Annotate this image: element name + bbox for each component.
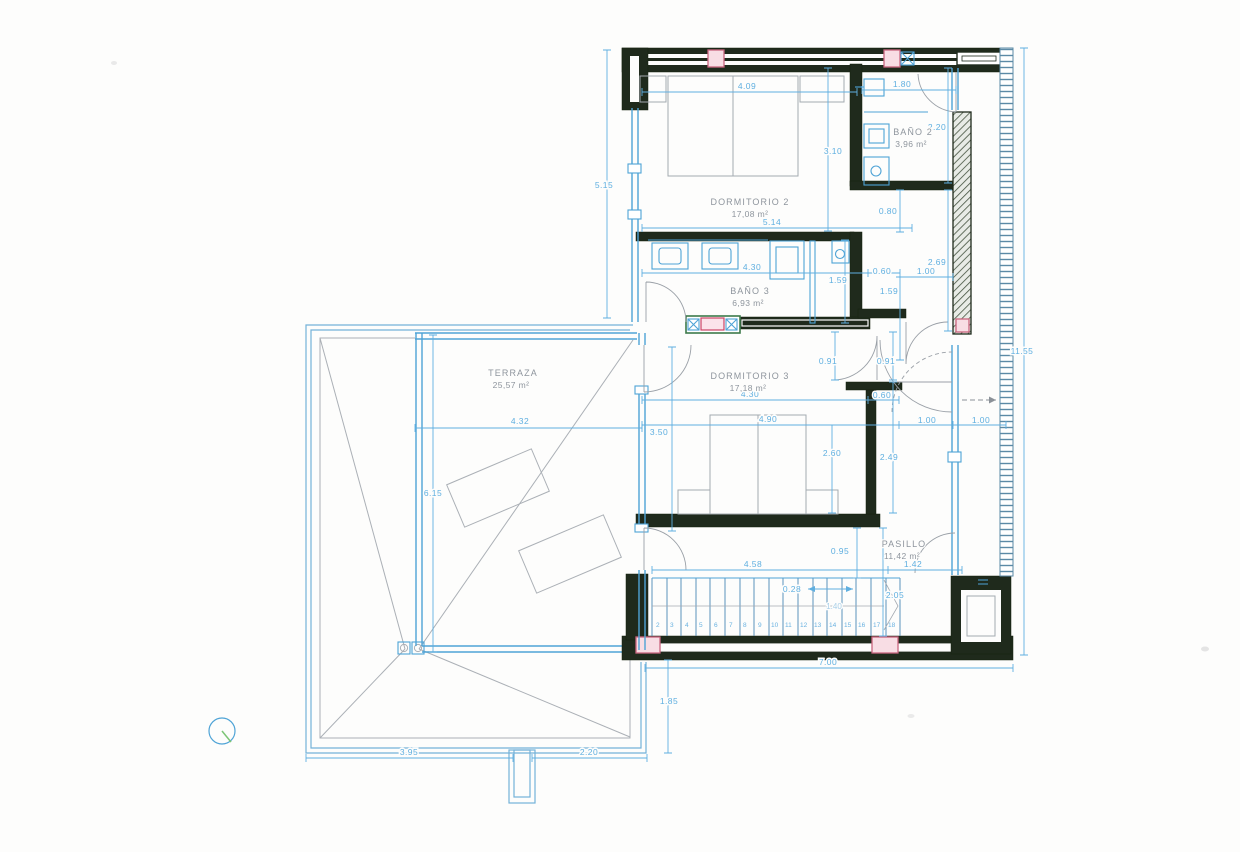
exit-arrow — [962, 397, 996, 404]
dim-label: 4.30 — [743, 262, 761, 272]
wall-dorm2-bano2 — [850, 64, 862, 186]
column-bottom-2 — [872, 637, 898, 653]
window-west-mullion-1 — [628, 164, 641, 173]
stair-number: 6 — [714, 622, 718, 629]
window-west-mullion-3 — [635, 386, 648, 394]
room-area-bano2: 3,96 m² — [895, 139, 927, 149]
window-east-mullion — [948, 452, 961, 462]
stair-number: 13 — [814, 622, 822, 629]
room-area-pasillo: 11,42 m² — [884, 551, 920, 561]
bed-dorm2 — [640, 76, 844, 176]
dim-label: 11.55 — [1011, 346, 1034, 356]
stairs: 2 3 4 5 6 7 8 9 10 11 12 13 14 15 16 17 … — [652, 578, 900, 636]
stair-number: 17 — [873, 622, 881, 629]
stair-number: 11 — [785, 622, 792, 629]
room-name-pasillo: PASILLO — [882, 539, 927, 549]
roof-inner-edge — [311, 330, 641, 748]
dim-label: 0.28 — [783, 584, 801, 594]
roof-eave-line — [320, 338, 630, 738]
door-pasillo-big — [880, 340, 952, 412]
wall-closet-top — [846, 382, 902, 390]
dim-label: 5.15 — [595, 180, 613, 190]
dim-label: 0.80 — [879, 206, 897, 216]
room-area-bano3: 6,93 m² — [732, 298, 764, 308]
dim-label: 2.05 — [886, 590, 904, 600]
room-name-bano3: BAÑO 3 — [730, 286, 770, 296]
stair-number: 2 — [656, 622, 660, 629]
dim-label: 1.40 — [826, 602, 842, 611]
column-top-1 — [708, 50, 724, 67]
terraza-south-wall — [422, 646, 637, 652]
dim-label: 6.15 — [424, 488, 442, 498]
stair-number: 16 — [858, 622, 866, 629]
bano3-fixtures — [648, 240, 849, 323]
roof-valley-2 — [320, 649, 405, 738]
room-area-dormitorio3: 17,18 m² — [730, 383, 767, 393]
dim-label: 0.91 — [877, 356, 895, 366]
dim-label: 1.00 — [918, 415, 936, 425]
dim-label: 2.20 — [580, 747, 598, 757]
dim-label: 2.49 — [880, 452, 898, 462]
dim-label: 3.95 — [400, 747, 418, 757]
stair-number: 7 — [729, 622, 733, 629]
room-name-terraza: TERRAZA — [488, 368, 538, 378]
room-name-bano2: BAÑO 2 — [893, 127, 933, 137]
bed-dorm3 — [678, 415, 838, 514]
stair-number: 8 — [743, 622, 747, 629]
room-name-dormitorio3: DORMITORIO 3 — [710, 371, 789, 381]
floor-plan-svg: 2 3 4 5 6 7 8 9 10 11 12 13 14 15 16 17 … — [0, 0, 1240, 852]
wall-dorm3-south — [636, 514, 880, 527]
column-top-2 — [884, 50, 900, 67]
dim-label: 1.85 — [660, 696, 678, 706]
roof-outer-edge — [306, 325, 646, 753]
door-dorm3-corridor — [833, 336, 877, 380]
wall-east-hatched — [953, 112, 971, 334]
wall-south-cavity — [660, 643, 990, 652]
door-terraza-dorm3 — [644, 345, 691, 392]
room-area-dormitorio2: 17,08 m² — [732, 209, 769, 219]
room-name-dormitorio2: DORMITORIO 2 — [710, 197, 789, 207]
roof-plan — [306, 325, 646, 803]
wall-closet-side — [866, 390, 876, 514]
dim-label: 3.10 — [824, 146, 842, 156]
wall-radiator-bar — [740, 317, 870, 329]
door-radiator-right — [906, 322, 948, 364]
dim-label: 1.59 — [880, 286, 898, 296]
main-floor-walls — [622, 48, 1013, 660]
window-west-mullion-2 — [628, 210, 641, 219]
dim-label: 4.90 — [759, 414, 777, 424]
compass-needle — [222, 731, 231, 742]
dim-label: 4.32 — [511, 416, 529, 426]
shower-screen — [810, 241, 815, 323]
stair-number: 14 — [829, 622, 837, 629]
dim-label: 4.58 — [744, 559, 762, 569]
stair-number: 18 — [888, 622, 896, 629]
window-east-upper — [952, 68, 958, 110]
room-area-terraza: 25,57 m² — [493, 380, 530, 390]
dim-label: 3.50 — [650, 427, 668, 437]
dim-label: 4.09 — [738, 81, 756, 91]
door-bano2 — [918, 72, 956, 112]
dim-label: 1.80 — [893, 79, 911, 89]
terraza-north-wall — [415, 333, 637, 339]
compass — [209, 718, 235, 744]
window-top-right — [957, 52, 1001, 65]
planter-southeast — [951, 576, 1011, 654]
stair-numbers: 2 3 4 5 6 7 8 9 10 11 12 13 14 15 16 17 … — [656, 622, 896, 629]
stair-number: 12 — [800, 622, 808, 629]
dim-label: 0.91 — [819, 356, 837, 366]
stair-number: 4 — [685, 622, 689, 629]
roof-valley-3 — [419, 649, 630, 737]
dim-label: 1.00 — [972, 415, 990, 425]
nightstand — [800, 76, 844, 102]
stair-number: 15 — [844, 622, 852, 629]
scanned-floor-plan-page: 2 3 4 5 6 7 8 9 10 11 12 13 14 15 16 17 … — [0, 0, 1240, 852]
radiator-red-cell — [701, 318, 724, 330]
stair-number: 9 — [758, 622, 762, 629]
column-east — [956, 319, 969, 332]
door-bano3 — [646, 282, 686, 322]
solar-panel-2 — [519, 515, 622, 593]
stair-number: 5 — [699, 622, 703, 629]
door-terraza-pasillo — [644, 528, 686, 570]
corner-cavity — [630, 56, 639, 102]
wc — [832, 241, 849, 263]
dim-label: 7.00 — [819, 657, 837, 667]
dim-label: 0.60 — [873, 266, 891, 276]
louvre-strip — [1000, 48, 1013, 576]
dim-label: 1.00 — [917, 266, 935, 276]
solar-panel-1 — [447, 449, 550, 527]
dim-label: 0.60 — [873, 390, 891, 400]
dim-label: 0.95 — [831, 546, 849, 556]
tread-dim-arrow — [808, 586, 853, 592]
wall-north-inner-leaf — [640, 58, 996, 61]
nightstand — [678, 490, 710, 514]
roof-valley-1 — [320, 338, 405, 649]
stair-number: 10 — [771, 622, 779, 629]
wall-radiator-step — [858, 309, 906, 318]
nightstand — [806, 490, 838, 514]
stair-number: 3 — [670, 622, 674, 629]
terraza-west-wall — [416, 333, 422, 646]
dim-label: 1.59 — [829, 275, 847, 285]
dim-label: 2.60 — [823, 448, 841, 458]
